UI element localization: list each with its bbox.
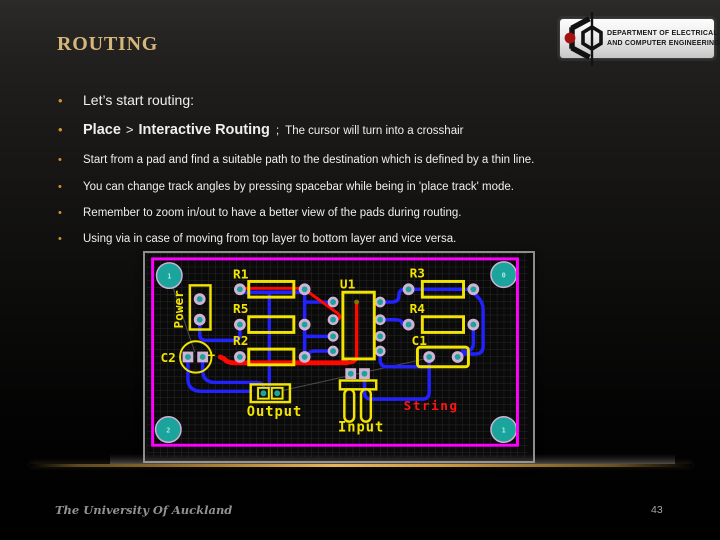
bullet-lets-start: • Let’s start routing: <box>58 92 678 108</box>
presentation-slide: ROUTING DEPARTMENT OF ELECTRICAL AND COM… <box>0 0 720 540</box>
bullet-marker: • <box>58 233 83 245</box>
department-name-line2: AND COMPUTER ENGINEERING <box>607 39 720 48</box>
bullet-text: The cursor will turn into a crosshair <box>285 125 463 137</box>
footer-university-name: The University Of Auckland <box>55 503 232 517</box>
label-plus: + <box>208 348 216 363</box>
molecule-icon <box>562 10 608 73</box>
label-u1: U1 <box>340 277 356 292</box>
label-output: Output <box>247 404 302 420</box>
bullet-marker: • <box>58 93 83 108</box>
slide-title: ROUTING <box>57 33 158 56</box>
menu-separator: > <box>126 122 134 137</box>
menu-interactive-routing: Interactive Routing <box>139 122 270 138</box>
gold-divider-line <box>30 464 692 467</box>
label-r4: R4 <box>410 302 426 317</box>
slide-page-number: 43 <box>651 504 663 516</box>
bullet-place-interactive-routing: • Place>Interactive Routing;The cursor w… <box>58 121 678 138</box>
label-string: String <box>404 399 459 414</box>
corner-pad-number: 0 <box>502 272 506 280</box>
corner-pad-number: 1 <box>502 426 506 434</box>
label-c2: C2 <box>160 351 175 366</box>
bullet-text: You can change track angles by pressing … <box>83 181 514 193</box>
department-name-line1: DEPARTMENT OF ELECTRICAL <box>607 29 720 38</box>
pcb-layout-image: Power C2 + R1 R5 R2 U1 R3 R4 C1 Output I… <box>143 251 535 463</box>
label-r5: R5 <box>233 302 248 317</box>
label-c1: C1 <box>412 334 428 349</box>
bullet-text: Using via in case of moving from top lay… <box>83 233 456 245</box>
menu-place: Place <box>83 122 121 138</box>
bullet-marker: • <box>58 207 83 219</box>
menu-path: Place>Interactive Routing;The cursor wil… <box>83 121 463 138</box>
label-r2: R2 <box>233 334 248 349</box>
bullet-start-from-pad: • Start from a pad and find a suitable p… <box>58 154 678 166</box>
bullet-text: Let’s start routing: <box>83 92 194 108</box>
bullet-track-angles: • You can change track angles by pressin… <box>58 181 678 193</box>
bullet-zoom-in-out: • Remember to zoom in/out to have a bett… <box>58 207 678 219</box>
bullet-text: Remember to zoom in/out to have a better… <box>83 207 461 219</box>
bullet-marker: • <box>58 122 83 137</box>
bullet-using-via: • Using via in case of moving from top l… <box>58 233 678 245</box>
label-r3: R3 <box>410 267 425 282</box>
semicolon: ; <box>276 123 279 137</box>
label-power: Power <box>172 290 187 329</box>
label-r1: R1 <box>233 268 249 283</box>
corner-pad-number: 2 <box>166 426 170 434</box>
corner-pad-number: 1 <box>167 273 171 281</box>
label-input: Input <box>338 420 384 436</box>
divider-shadow <box>110 454 675 464</box>
department-name: DEPARTMENT OF ELECTRICAL AND COMPUTER EN… <box>607 29 720 48</box>
bullet-marker: • <box>58 181 83 193</box>
department-logo: DEPARTMENT OF ELECTRICAL AND COMPUTER EN… <box>559 18 715 59</box>
bullet-text: Start from a pad and find a suitable pat… <box>83 154 534 166</box>
bullet-marker: • <box>58 154 83 166</box>
pin1-marker <box>354 300 359 305</box>
